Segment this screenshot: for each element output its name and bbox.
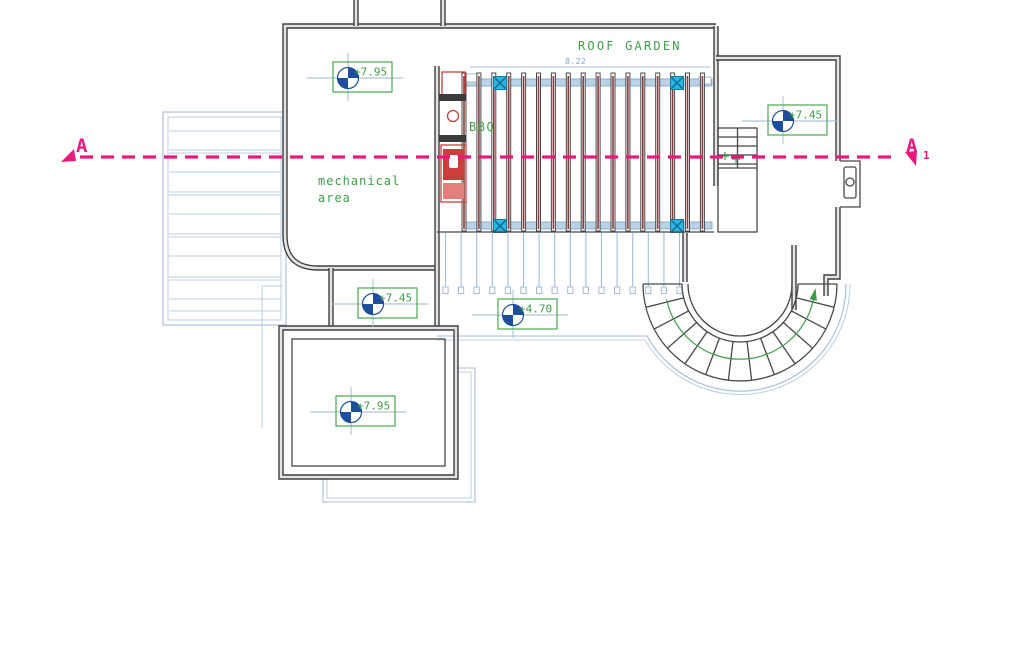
floor-plan-sheet: 8.22 xyxy=(0,0,1024,659)
level-value: +4.70 xyxy=(519,303,552,316)
pergola-post xyxy=(671,77,684,90)
stair-tread-line xyxy=(685,332,707,364)
baluster-foot xyxy=(615,287,620,294)
baluster-foot xyxy=(521,287,526,294)
baluster-foot xyxy=(568,287,573,294)
section-label-a: A xyxy=(76,135,88,157)
level-marker-south-room: +7.95 xyxy=(310,387,406,435)
lower-terrace-outline xyxy=(323,368,475,502)
chimney-wall xyxy=(356,0,443,26)
bbq-hearth xyxy=(443,183,464,199)
level-symbol-quadrant-sw xyxy=(503,315,514,326)
pergola-post xyxy=(494,220,507,233)
right-wing-wall xyxy=(716,58,838,296)
baluster-foot xyxy=(505,287,510,294)
baluster-foot xyxy=(443,287,448,294)
terrace-edge-line xyxy=(437,284,850,395)
dimension-label: 8.22 xyxy=(565,57,586,66)
stair-wall-stubs xyxy=(685,233,794,310)
bbq-burner-icon xyxy=(448,111,459,122)
stair-tread-line xyxy=(728,342,733,381)
lower-terrace-outer-line xyxy=(323,368,475,502)
wall-fixture-knob xyxy=(846,178,854,186)
baluster-foot xyxy=(490,287,495,294)
level-symbol-quadrant-sw xyxy=(363,304,374,315)
baluster-foot xyxy=(599,287,604,294)
section-arrow-left-icon xyxy=(61,149,76,162)
section-label-a1-subscript: 1 xyxy=(923,149,930,162)
level-symbol-quadrant-sw xyxy=(338,78,349,89)
level-value: +7.45 xyxy=(379,292,412,305)
stair-direction-arrow xyxy=(810,288,817,301)
level-value: +7.95 xyxy=(357,400,390,413)
stair-inner-parapet-a xyxy=(688,284,792,336)
terrace-parapet-inner xyxy=(437,284,850,395)
level-marker-terrace: +4.70 xyxy=(472,290,568,338)
stair-tread-line xyxy=(783,322,812,348)
roof-plan-drawing: 8.22 xyxy=(0,0,1024,659)
stair-tread-line xyxy=(646,298,684,307)
baluster-foot xyxy=(661,287,666,294)
baluster-foot xyxy=(459,287,464,294)
level-markers: +7.95+7.45+7.45+4.70+7.95 xyxy=(307,53,838,435)
stair-tread-line xyxy=(761,338,775,374)
left-lower-roof xyxy=(163,112,286,428)
stair-tread-line xyxy=(706,338,720,374)
left-lower-roof-outline xyxy=(163,112,286,325)
bbq-shelf-lower xyxy=(439,135,466,142)
stair-treads xyxy=(643,284,837,380)
section-label-a1: A xyxy=(906,135,918,157)
baluster-foot xyxy=(677,287,682,294)
roof-garden-label: ROOF GARDEN xyxy=(578,39,682,53)
level-marker-west-corridor: +7.45 xyxy=(332,279,428,327)
level-value: +7.95 xyxy=(354,66,387,79)
stair-tread-line xyxy=(747,342,752,381)
baluster-foot xyxy=(646,287,651,294)
bbq-label: BBQ xyxy=(469,120,495,134)
baluster-foot xyxy=(630,287,635,294)
bbq-shelf-upper xyxy=(439,94,466,101)
roof-hatch-grate xyxy=(718,128,757,232)
level-marker-mechanical-roof: +7.95 xyxy=(307,53,403,101)
mechanical-area-label-line1: mechanical xyxy=(318,174,400,188)
baluster-foot xyxy=(537,287,542,294)
level-symbol-quadrant-sw xyxy=(341,412,352,423)
baluster-foot xyxy=(583,287,588,294)
stair-inner-parapet-b xyxy=(682,284,798,342)
level-value: +7.45 xyxy=(789,109,822,122)
left-lower-roof-inner-line xyxy=(168,117,281,320)
pergola-post xyxy=(671,220,684,233)
baluster-foot xyxy=(552,287,557,294)
stair-tread-line xyxy=(773,332,795,364)
baluster-foot xyxy=(474,287,479,294)
stair-tread-line xyxy=(667,322,696,348)
roof-hatch-grille xyxy=(718,128,757,168)
wall-fixture-outline xyxy=(840,161,860,207)
mechanical-area-label-line2: area xyxy=(318,191,351,205)
bbq-grill-door xyxy=(449,155,458,168)
pergola-slats xyxy=(462,73,704,231)
pergola-post xyxy=(494,77,507,90)
level-symbol-quadrant-sw xyxy=(773,121,784,132)
wall-fixture xyxy=(840,161,860,207)
